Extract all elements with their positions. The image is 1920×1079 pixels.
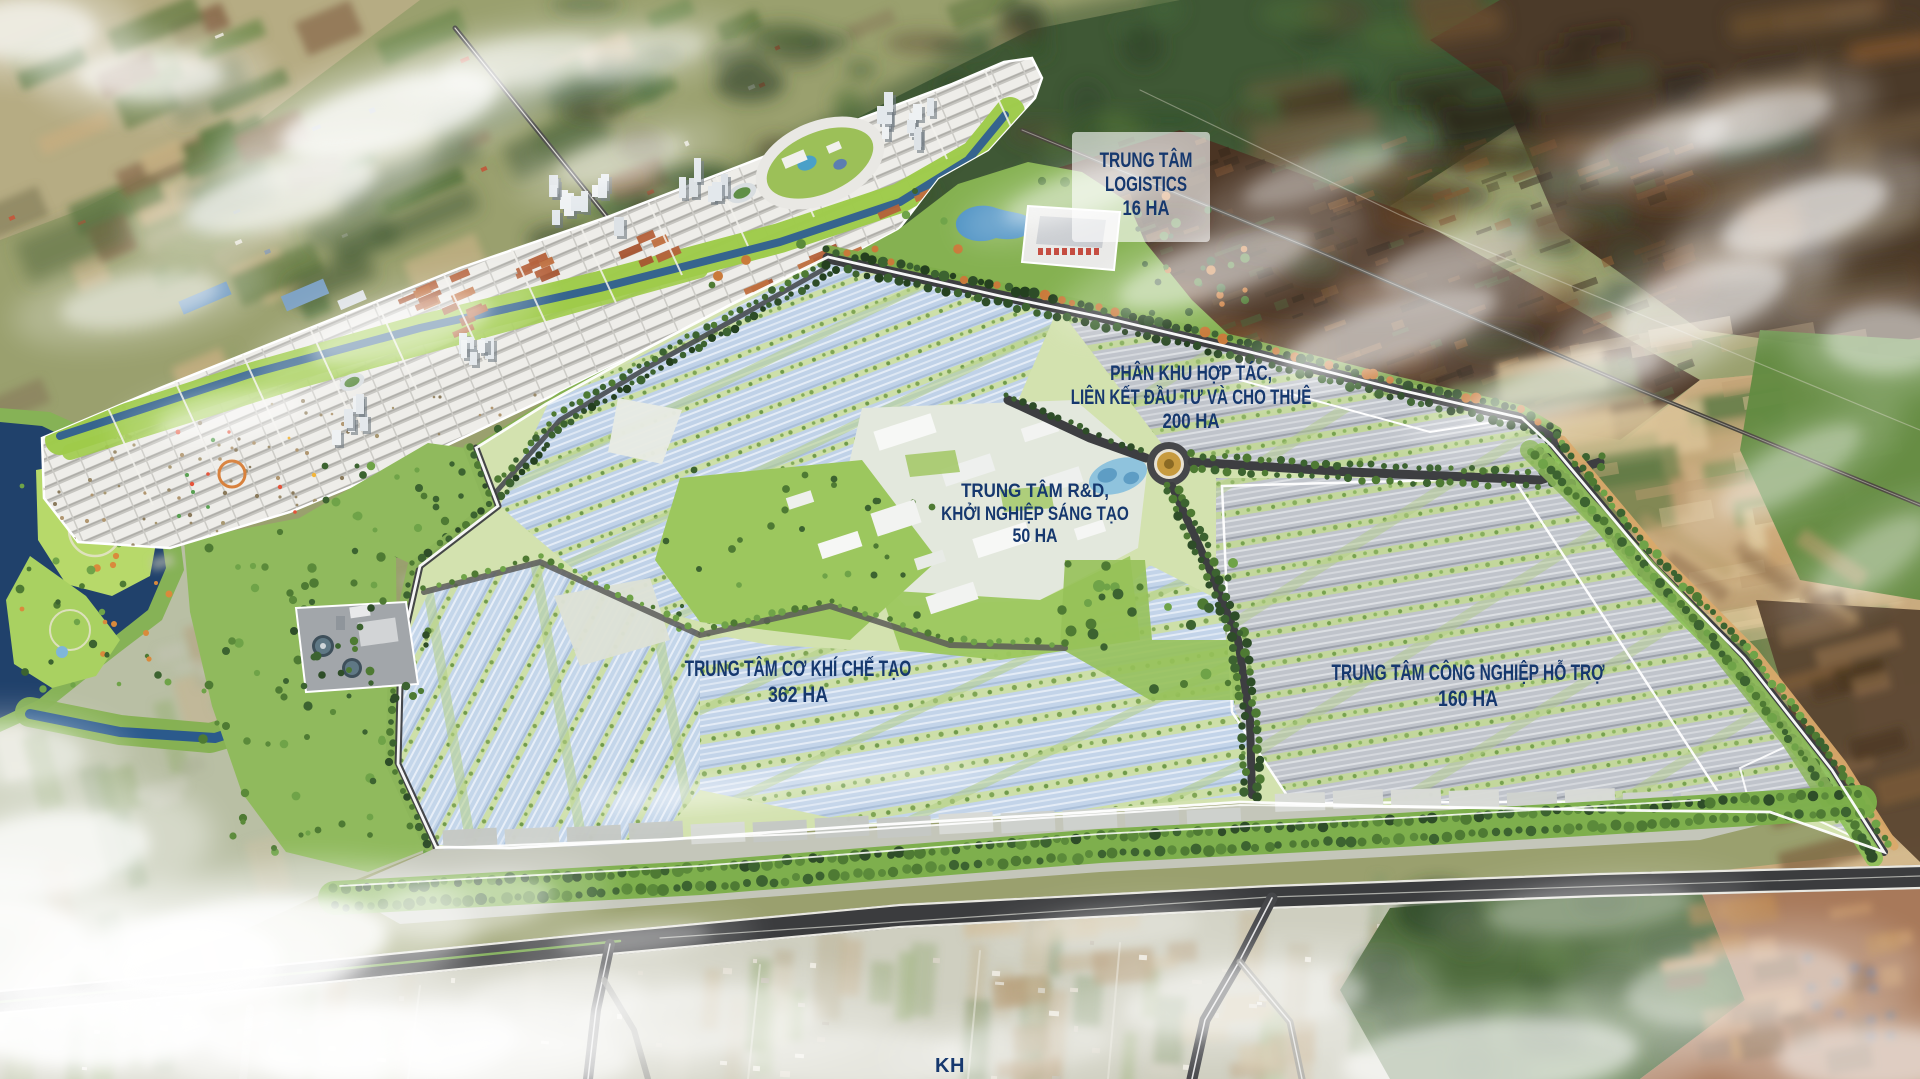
svg-text:16 HA: 16 HA <box>1123 197 1170 220</box>
svg-text:TRUNG TÂM CÔNG NGHIỆP HỖ TRỢ: TRUNG TÂM CÔNG NGHIỆP HỖ TRỢ <box>1332 660 1606 685</box>
svg-text:KH: KH <box>935 1055 965 1077</box>
svg-text:TRUNG TÂM: TRUNG TÂM <box>1100 148 1193 172</box>
svg-text:PHÂN KHU HỢP TÁC,: PHÂN KHU HỢP TÁC, <box>1110 361 1272 385</box>
svg-text:KHỞI NGHIỆP SÁNG TẠO: KHỞI NGHIỆP SÁNG TẠO <box>941 502 1129 524</box>
svg-text:LIÊN KẾT ĐẦU TƯ VÀ CHO THUÊ: LIÊN KẾT ĐẦU TƯ VÀ CHO THUÊ <box>1071 385 1312 409</box>
svg-text:TRUNG TÂM CƠ KHÍ CHẾ TẠO: TRUNG TÂM CƠ KHÍ CHẾ TẠO <box>685 656 912 681</box>
svg-text:50 HA: 50 HA <box>1013 525 1058 547</box>
svg-text:160 HA: 160 HA <box>1438 687 1498 711</box>
svg-text:LOGISTICS: LOGISTICS <box>1105 172 1187 196</box>
svg-text:200 HA: 200 HA <box>1162 410 1219 433</box>
svg-text:TRUNG TÂM R&D,: TRUNG TÂM R&D, <box>961 479 1109 501</box>
svg-text:362 HA: 362 HA <box>768 683 828 707</box>
